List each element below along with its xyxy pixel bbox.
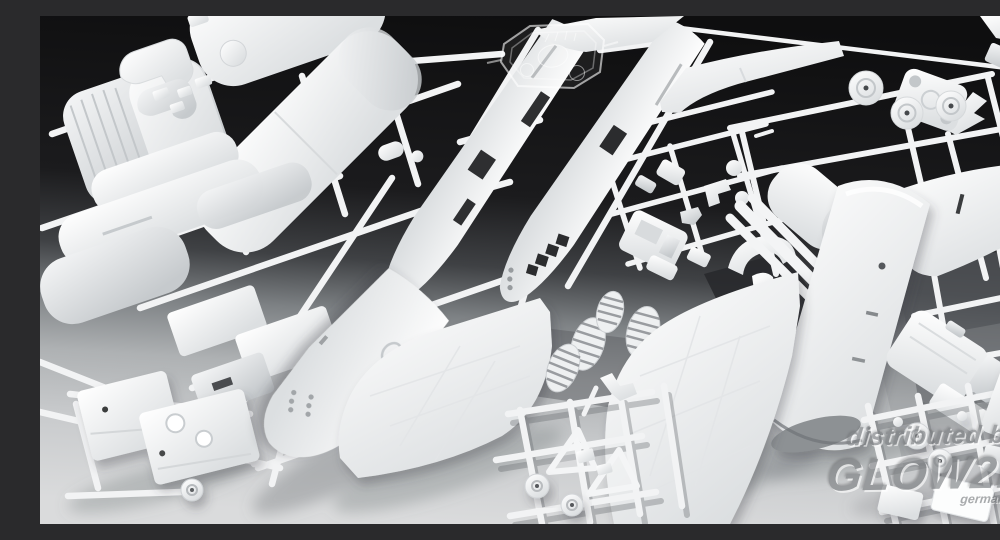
small-wheel-part <box>181 479 203 501</box>
gear-wheel <box>525 474 549 498</box>
sprue-scene <box>40 16 1000 524</box>
gear-wheel <box>561 494 583 516</box>
model-kit-sprues-photo: distributed by GLOW2B germany <box>40 16 1000 524</box>
